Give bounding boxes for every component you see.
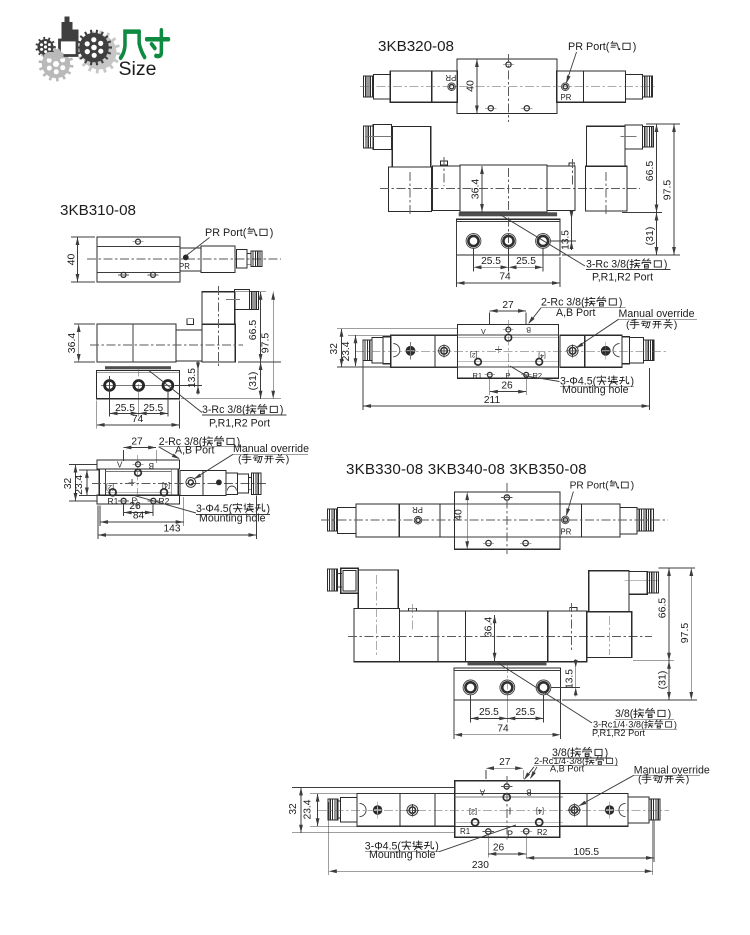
svg-text:23.4: 23.4 bbox=[74, 475, 85, 495]
svg-text:PR: PR bbox=[561, 528, 572, 537]
svg-text:): ) bbox=[266, 503, 270, 515]
svg-text:(31): (31) bbox=[657, 671, 669, 690]
svg-text:36.4: 36.4 bbox=[66, 333, 78, 354]
svg-text:PR Port(: PR Port( bbox=[570, 481, 610, 492]
svg-text:R1: R1 bbox=[460, 827, 471, 836]
svg-text:3-Rc 3/8(: 3-Rc 3/8( bbox=[202, 404, 246, 416]
svg-text:74: 74 bbox=[497, 723, 509, 734]
svg-text:Mounting hole: Mounting hole bbox=[369, 849, 436, 861]
svg-text:23.4: 23.4 bbox=[303, 799, 314, 819]
svg-text:PR Port(: PR Port( bbox=[205, 227, 247, 239]
svg-text:[4]: [4] bbox=[536, 807, 544, 816]
svg-text:): ) bbox=[605, 747, 609, 759]
svg-text:V: V bbox=[481, 327, 486, 336]
svg-text:105.5: 105.5 bbox=[574, 847, 600, 858]
svg-text:3-Rc 3/8(: 3-Rc 3/8( bbox=[586, 259, 630, 271]
svg-text:[2]: [2] bbox=[469, 808, 477, 817]
svg-text:): ) bbox=[668, 708, 672, 720]
svg-text:13.5: 13.5 bbox=[565, 669, 576, 689]
svg-text:74: 74 bbox=[132, 414, 144, 425]
svg-text:Manual override: Manual override bbox=[233, 443, 309, 455]
svg-text:R1: R1 bbox=[108, 496, 119, 506]
svg-text:): ) bbox=[674, 720, 677, 730]
svg-text:25.5: 25.5 bbox=[516, 256, 536, 267]
svg-text:97.5: 97.5 bbox=[260, 333, 272, 354]
svg-text:PR: PR bbox=[412, 505, 423, 514]
svg-text:Mounting hole: Mounting hole bbox=[199, 513, 266, 525]
svg-text:): ) bbox=[664, 259, 668, 271]
svg-text:Manual override: Manual override bbox=[619, 308, 695, 320]
svg-text:143: 143 bbox=[164, 524, 181, 535]
svg-text:PR Port(: PR Port( bbox=[568, 41, 610, 53]
svg-text:36.4: 36.4 bbox=[482, 617, 494, 638]
svg-text:(: ( bbox=[638, 775, 642, 786]
svg-text:): ) bbox=[286, 455, 289, 466]
svg-text:27: 27 bbox=[499, 757, 511, 768]
svg-text:P,R1,R2 Port: P,R1,R2 Port bbox=[592, 728, 645, 738]
svg-text:): ) bbox=[615, 756, 618, 766]
svg-text:P,R1,R2 Port: P,R1,R2 Port bbox=[592, 272, 653, 284]
svg-text:25.5: 25.5 bbox=[481, 256, 501, 267]
svg-text:): ) bbox=[280, 404, 284, 416]
svg-text:97.5: 97.5 bbox=[679, 623, 691, 644]
svg-text:25.5: 25.5 bbox=[115, 403, 135, 414]
svg-text:): ) bbox=[630, 376, 634, 388]
svg-text:B: B bbox=[526, 788, 531, 797]
svg-text:66.5: 66.5 bbox=[247, 320, 259, 341]
svg-text:27: 27 bbox=[131, 437, 143, 448]
svg-text:): ) bbox=[619, 297, 623, 309]
svg-text:25.5: 25.5 bbox=[515, 707, 535, 718]
svg-text:A,B Port: A,B Port bbox=[550, 764, 585, 774]
svg-text:(: ( bbox=[238, 455, 242, 466]
svg-text:3KB320-08: 3KB320-08 bbox=[378, 38, 454, 55]
svg-text:3KB330-08 3KB340-08 3KB350-08: 3KB330-08 3KB340-08 3KB350-08 bbox=[346, 461, 587, 478]
svg-text:(31): (31) bbox=[247, 372, 259, 391]
svg-text:13.5: 13.5 bbox=[187, 368, 198, 388]
svg-text:(31): (31) bbox=[644, 227, 656, 246]
svg-text:PR: PR bbox=[179, 262, 190, 271]
svg-text:3KB310-08: 3KB310-08 bbox=[60, 202, 136, 219]
svg-text:211: 211 bbox=[484, 395, 501, 406]
svg-text:V: V bbox=[117, 461, 123, 470]
svg-text:R2: R2 bbox=[537, 828, 548, 837]
svg-text:A,B Port: A,B Port bbox=[556, 307, 596, 319]
svg-text:40: 40 bbox=[66, 254, 78, 266]
svg-text:Manual override: Manual override bbox=[634, 764, 710, 776]
svg-text:32: 32 bbox=[63, 478, 74, 490]
svg-text:): ) bbox=[633, 41, 637, 53]
svg-text:66.5: 66.5 bbox=[657, 598, 669, 619]
svg-text:74: 74 bbox=[499, 272, 511, 283]
svg-text:R1: R1 bbox=[473, 371, 483, 380]
svg-text:Size: Size bbox=[119, 58, 157, 80]
svg-text:40: 40 bbox=[453, 509, 465, 521]
svg-text:P: P bbox=[507, 829, 513, 839]
svg-text:36.4: 36.4 bbox=[470, 179, 482, 200]
svg-text:25.5: 25.5 bbox=[143, 403, 163, 414]
svg-text:3/8(: 3/8( bbox=[615, 708, 634, 720]
svg-text:P,R1,R2 Port: P,R1,R2 Port bbox=[209, 418, 270, 430]
svg-text:[2]: [2] bbox=[470, 351, 478, 358]
svg-text:230: 230 bbox=[472, 860, 489, 871]
svg-text:Mounting hole: Mounting hole bbox=[562, 384, 629, 396]
svg-text:26: 26 bbox=[501, 380, 513, 391]
svg-text:25.5: 25.5 bbox=[479, 707, 499, 718]
svg-text:B: B bbox=[149, 461, 154, 470]
svg-text:PR: PR bbox=[445, 73, 456, 82]
svg-text:): ) bbox=[686, 775, 689, 786]
svg-text:40: 40 bbox=[465, 80, 477, 92]
svg-text:26: 26 bbox=[493, 842, 505, 853]
svg-text:32: 32 bbox=[288, 803, 299, 815]
svg-text:23.4: 23.4 bbox=[341, 341, 352, 361]
svg-text:(: ( bbox=[626, 320, 630, 331]
svg-text:66.5: 66.5 bbox=[644, 161, 656, 182]
svg-text:B: B bbox=[526, 326, 531, 335]
svg-text:32: 32 bbox=[329, 343, 340, 355]
svg-text:A,B Port: A,B Port bbox=[175, 445, 215, 457]
svg-text:): ) bbox=[435, 841, 439, 853]
svg-text:): ) bbox=[674, 320, 677, 331]
svg-text:13.5: 13.5 bbox=[560, 230, 571, 250]
svg-text:27: 27 bbox=[502, 300, 514, 311]
svg-text:PR: PR bbox=[561, 93, 572, 102]
svg-text:): ) bbox=[631, 481, 634, 492]
svg-text:84: 84 bbox=[133, 511, 145, 522]
svg-text:A: A bbox=[479, 788, 485, 797]
svg-text:): ) bbox=[270, 227, 274, 239]
svg-text:97.5: 97.5 bbox=[662, 180, 674, 201]
